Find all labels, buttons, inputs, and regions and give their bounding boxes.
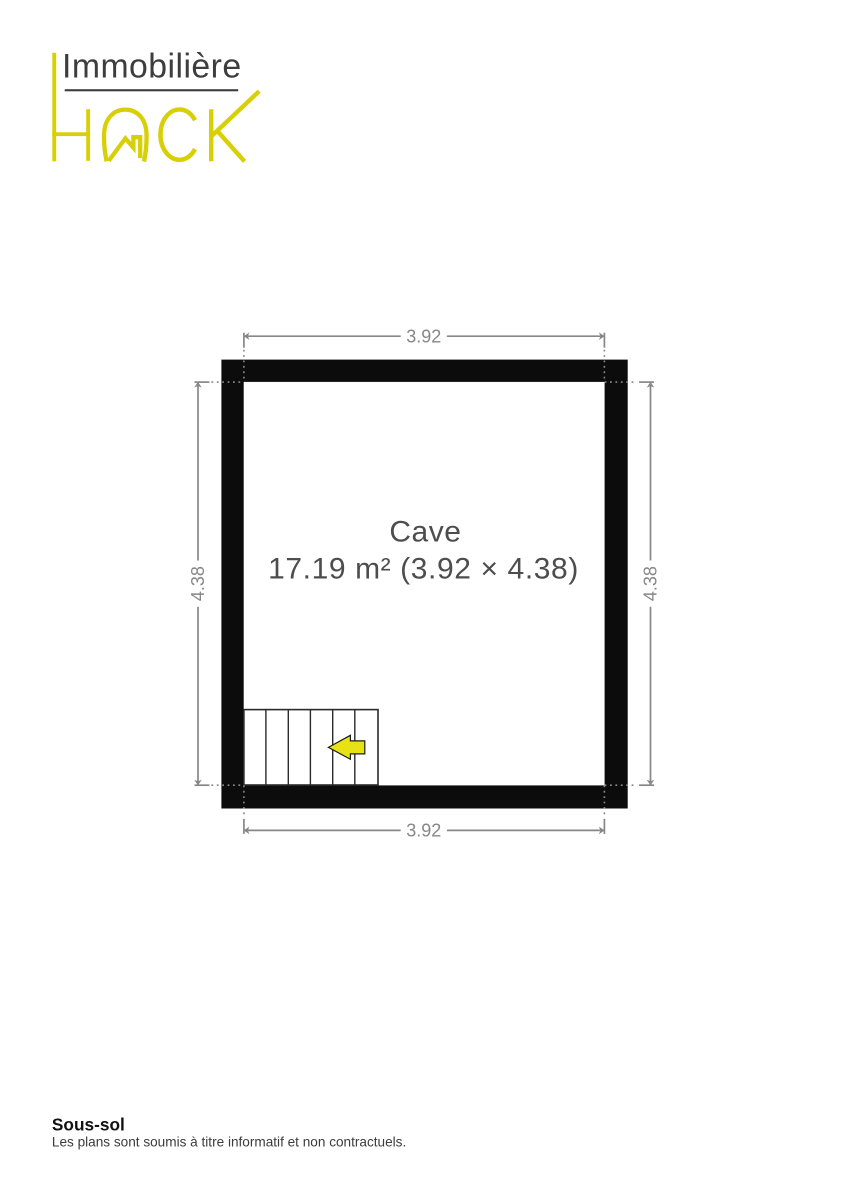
svg-text:Cave: Cave: [389, 516, 461, 549]
svg-text:3.92: 3.92: [406, 326, 441, 346]
svg-text:3.92: 3.92: [406, 821, 441, 841]
svg-text:4.38: 4.38: [641, 566, 661, 601]
svg-text:17.19 m² (3.92 × 4.38): 17.19 m² (3.92 × 4.38): [268, 553, 579, 586]
svg-text:4.38: 4.38: [188, 566, 208, 601]
svg-text:Sous-sol: Sous-sol: [52, 1115, 125, 1135]
svg-text:Les plans sont soumis à titre: Les plans sont soumis à titre informatif…: [52, 1135, 406, 1150]
svg-text:Immobilière: Immobilière: [62, 47, 242, 85]
